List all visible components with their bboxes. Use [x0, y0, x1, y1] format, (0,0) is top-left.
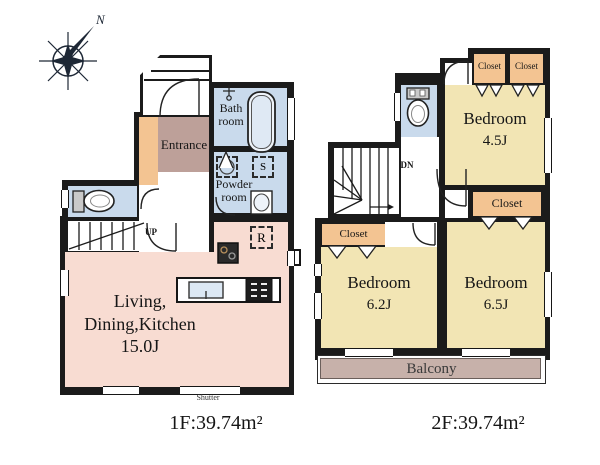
- closet-middle-label: Closet: [473, 197, 541, 210]
- ldk-label: Living, Dining,Kitchen 15.0J: [75, 290, 205, 358]
- storage-space: S: [252, 156, 274, 178]
- window: [462, 348, 510, 357]
- shutter-label: Shutter: [188, 394, 228, 403]
- back-door: [287, 251, 295, 266]
- floor2-caption: 2F:39.74m²: [403, 412, 553, 434]
- porch-step-line: [151, 70, 212, 72]
- window: [103, 386, 139, 395]
- bedroom-45-size: 4.5J: [445, 133, 545, 150]
- refrigerator-label: R: [257, 230, 266, 246]
- window: [60, 270, 69, 296]
- closet-top-right-label: Closet: [510, 62, 543, 72]
- bedroom-62-label: Bedroom: [321, 274, 437, 293]
- closet-top-left-label: Closet: [474, 62, 505, 72]
- stairs-down-area: [334, 148, 399, 214]
- window: [394, 93, 401, 121]
- stairs-down-label: DN: [396, 161, 418, 171]
- bedroom-45-label: Bedroom: [445, 110, 545, 129]
- stairs-up-label: UP: [141, 228, 161, 238]
- refrigerator-space: R: [250, 226, 273, 249]
- washing-machine-space: [216, 156, 238, 178]
- window: [61, 190, 69, 208]
- porch: [140, 55, 212, 118]
- compass-rose: N: [24, 10, 116, 102]
- floor1-caption: 1F:39.74m²: [141, 412, 291, 434]
- hall-2f: [401, 137, 439, 217]
- floorplan-canvas: N R S: [0, 0, 600, 465]
- closet-bedroom62-label: Closet: [322, 228, 385, 240]
- bedroom-62-door-nook: [385, 222, 437, 247]
- bedroom-62-size: 6.2J: [321, 297, 437, 314]
- storage-label: S: [260, 161, 266, 173]
- balcony-label: Balcony: [317, 361, 546, 378]
- entrance-label: Entrance: [153, 138, 215, 152]
- powder-room-label: Powder room: [211, 178, 257, 204]
- window: [544, 272, 552, 317]
- bedroom-65-label: Bedroom: [447, 274, 545, 293]
- bedroom-45-door-nook: [445, 63, 472, 85]
- window: [345, 348, 393, 357]
- bedroom-65-size: 6.5J: [447, 297, 545, 314]
- compass-north-label: N: [95, 12, 106, 27]
- window: [287, 98, 295, 140]
- bathroom-label: Bath room: [211, 102, 251, 128]
- toilet-room-2f: [401, 85, 437, 137]
- stairs-up-area: [68, 221, 145, 251]
- window: [544, 118, 552, 173]
- porch-step-line: [144, 79, 212, 81]
- toilet-room-1f: [68, 186, 137, 217]
